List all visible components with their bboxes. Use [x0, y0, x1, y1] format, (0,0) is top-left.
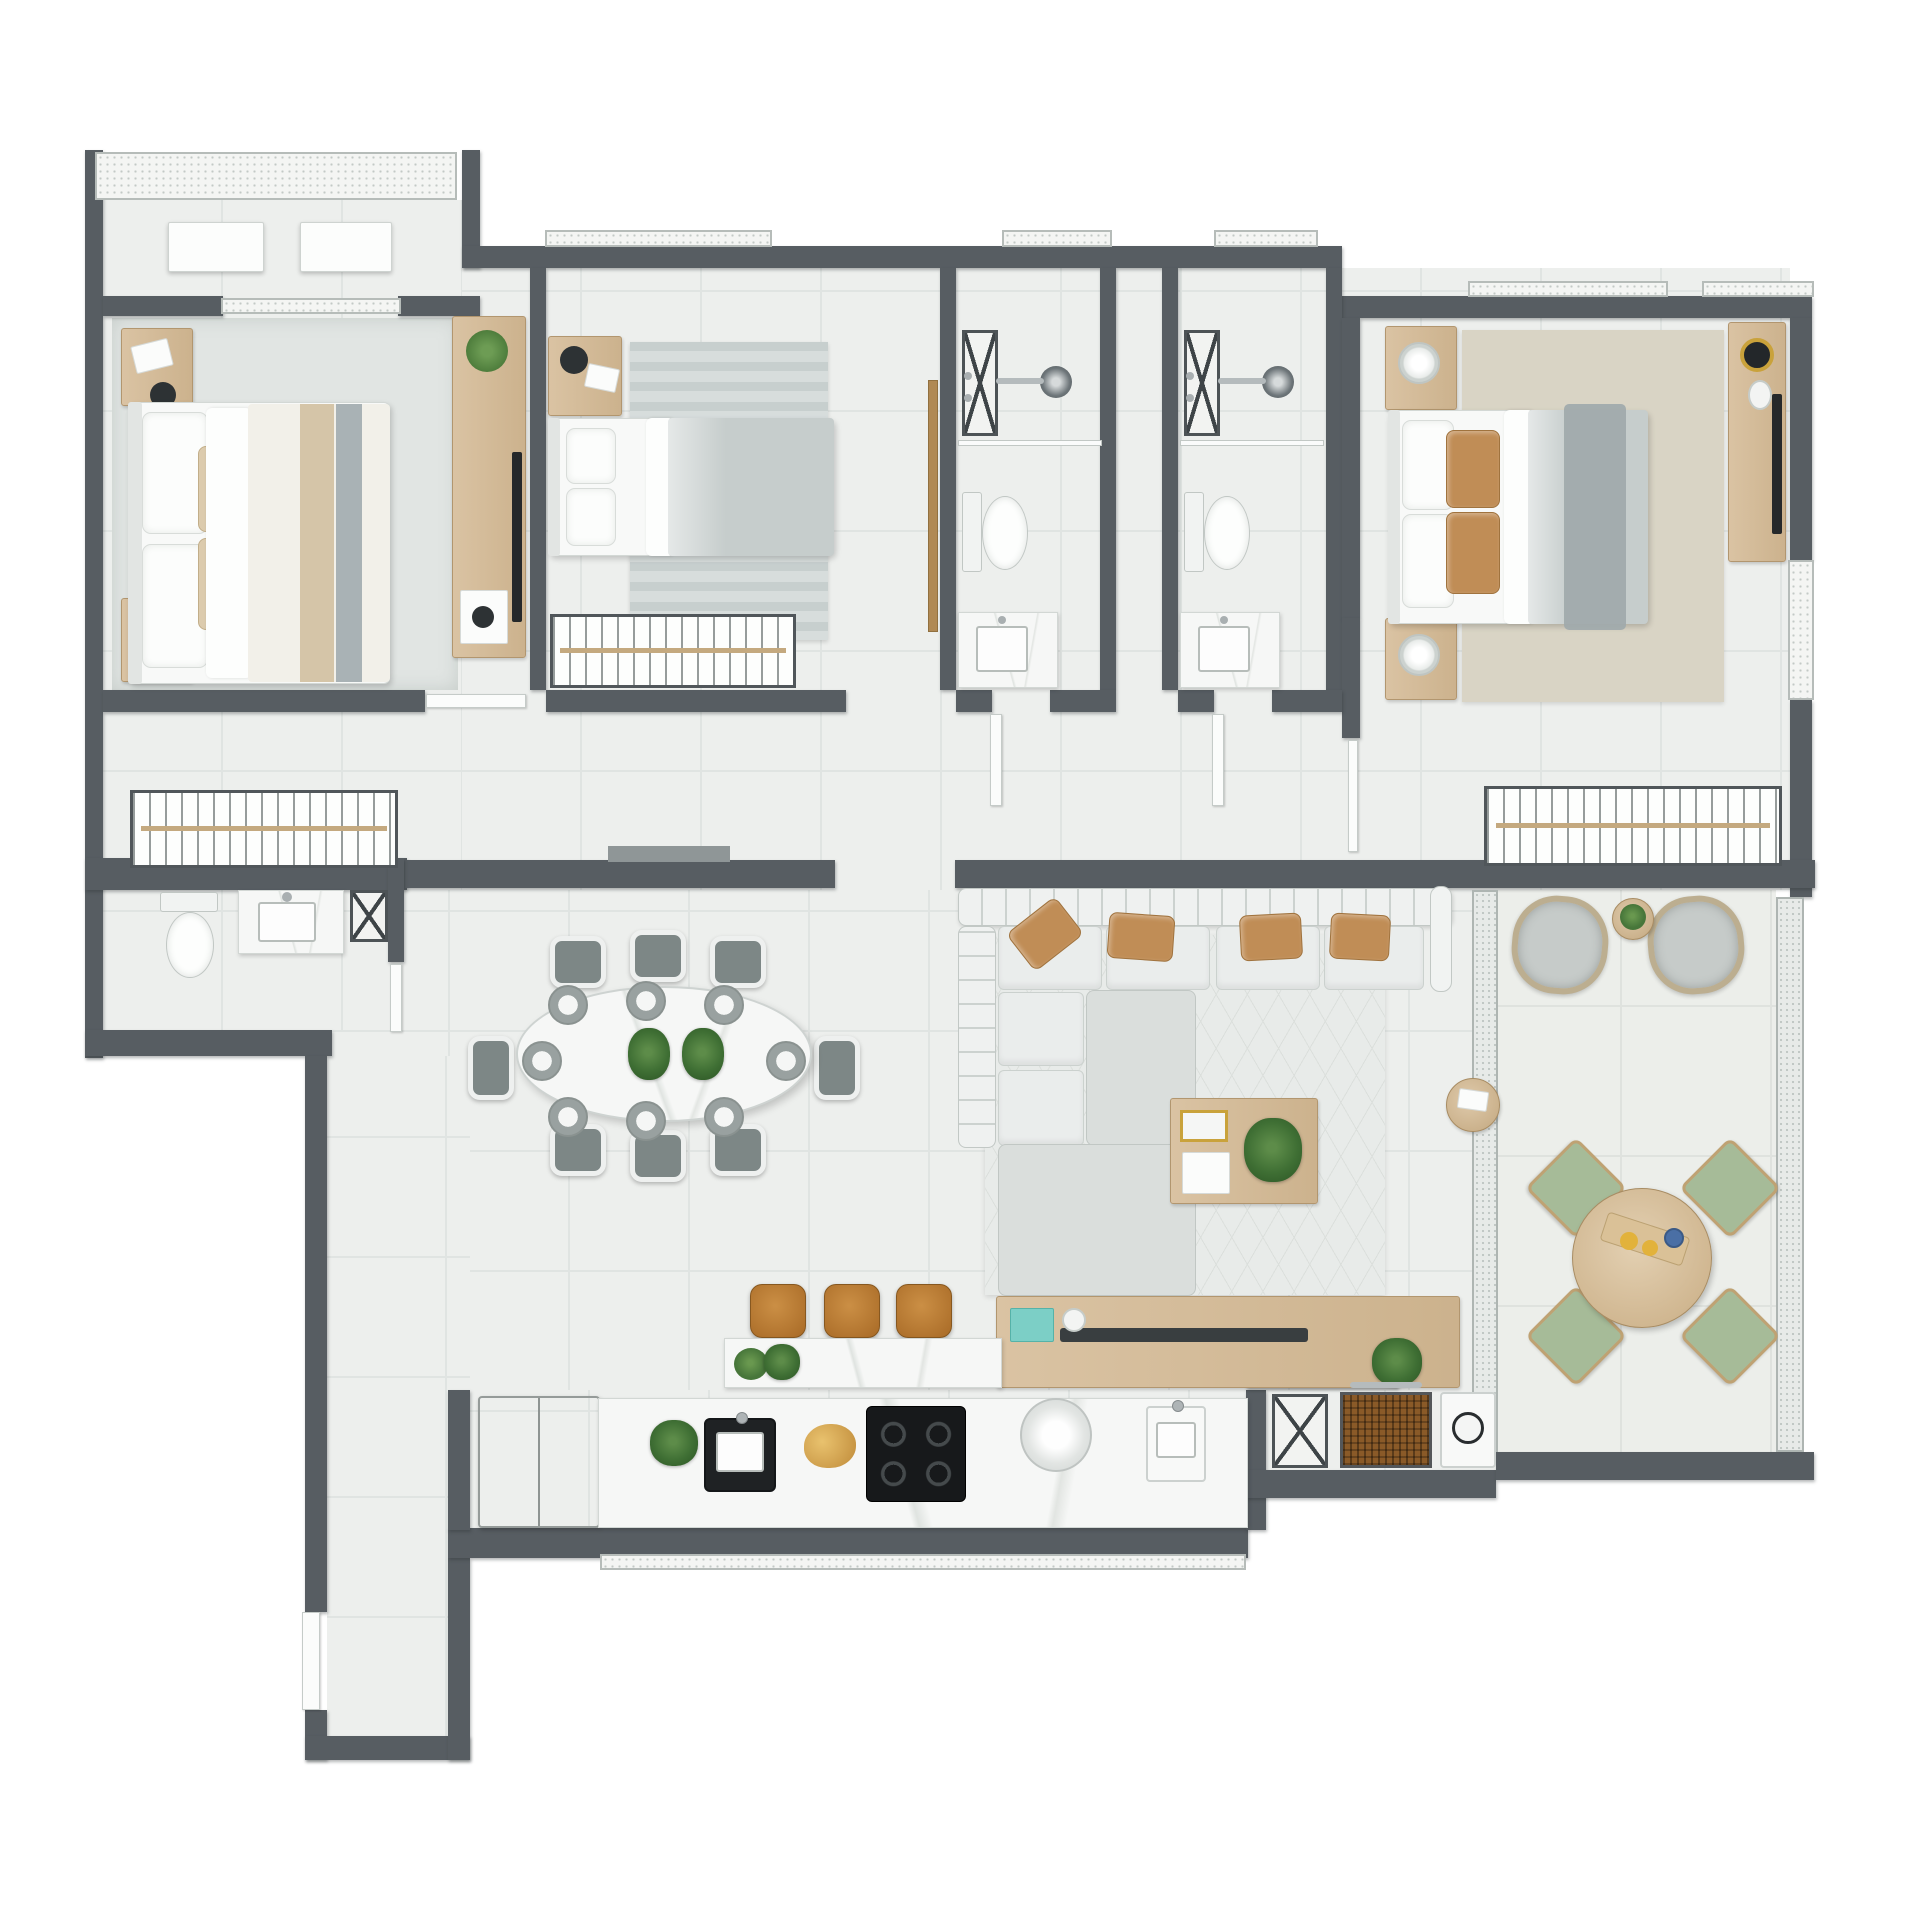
- bedroom1-duvet-beige-band: [300, 404, 334, 682]
- wardrobe-tray-decor: [472, 606, 494, 628]
- wall-bath1-right: [1100, 268, 1116, 690]
- bath2-toilet-tank: [1184, 492, 1204, 572]
- sofa-pillow-tan-1: [1106, 912, 1175, 962]
- bedroom1-door: [426, 694, 526, 708]
- dressing-closet-rail: [130, 790, 398, 868]
- wall-corridor-right: [448, 1558, 470, 1760]
- balcony-bowl: [1664, 1228, 1684, 1248]
- ac-unit-2: [300, 222, 392, 272]
- coffee-table-gold-tray: [1180, 1110, 1228, 1142]
- master-window-right: [1788, 560, 1814, 700]
- wall-left-exterior: [85, 150, 103, 1058]
- wall-bath1-bottom-right: [1050, 690, 1116, 712]
- wall-powder-bottom: [85, 1030, 332, 1056]
- kitchen-appliance-round: [1020, 1398, 1092, 1472]
- wall-bath2-bottom-left: [1178, 690, 1214, 712]
- bath1-shower-control-1: [964, 372, 972, 380]
- bar-stool-1: [750, 1284, 806, 1338]
- wall-nook-bottom: [1246, 1470, 1496, 1498]
- bar-plant-1: [734, 1348, 768, 1380]
- dining-chair-top-2: [630, 930, 686, 982]
- bath2-door: [1212, 714, 1224, 806]
- duct-shaft-powder: [350, 890, 388, 942]
- master-pillow-tan-1: [1446, 430, 1500, 508]
- bath2-shower-glass: [1180, 440, 1324, 446]
- master-pillow-tan-2: [1446, 512, 1500, 594]
- bath1-toilet-tank: [962, 492, 982, 572]
- coffee-table-plant: [1244, 1118, 1302, 1182]
- apartment-floor-plan: [0, 0, 1920, 1920]
- dining-plate-6: [704, 1097, 744, 1137]
- bedroom-tv: [512, 452, 522, 622]
- sofa-seat-left-1: [998, 992, 1084, 1066]
- wall-bath2-bottom-right: [1272, 690, 1342, 712]
- wall-corridor-left-upper: [305, 1056, 327, 1612]
- kitchen-sink2-basin: [1156, 1422, 1196, 1458]
- bedroom1-bed-headboard: [128, 402, 142, 684]
- wall-balcony-bottom: [1496, 1452, 1814, 1480]
- balcony-railing: [1776, 897, 1804, 1452]
- bar-stool-2: [824, 1284, 880, 1338]
- tv-console-teal-box: [1010, 1308, 1054, 1342]
- master-closet-rail: [1484, 786, 1782, 866]
- dining-plate-2: [626, 981, 666, 1021]
- side-table-books: [1457, 1088, 1489, 1112]
- wall-dining-half: [405, 860, 835, 888]
- wall-bath1-bottom-left: [956, 690, 992, 712]
- dining-plate-7: [522, 1041, 562, 1081]
- bedroom2-closet-rail: [550, 614, 796, 688]
- bbq-skewers: [1350, 1382, 1422, 1388]
- powder-door: [390, 964, 402, 1032]
- wall-bedroom1-bottom: [103, 690, 425, 712]
- dining-centerpiece-2: [682, 1028, 724, 1080]
- bedroom2-duvet: [668, 418, 834, 556]
- kitchen-sink-basin: [716, 1432, 764, 1472]
- kitchen-fridge: [478, 1396, 600, 1528]
- bath2-faucet: [1220, 616, 1228, 624]
- kitchen-sink-faucet: [736, 1412, 748, 1424]
- dining-plate-4: [548, 1097, 588, 1137]
- bedroom2-nightstand-decor: [560, 346, 588, 374]
- balcony-round-table: [1572, 1188, 1712, 1328]
- powder-toilet-tank: [160, 892, 218, 912]
- dining-plate-5: [626, 1101, 666, 1141]
- master-window-top: [1468, 281, 1668, 297]
- bbq-grill: [1340, 1392, 1432, 1468]
- powder-sink: [258, 902, 316, 942]
- bath1-shower-glass: [958, 440, 1102, 446]
- half-wall-ledge: [608, 846, 730, 862]
- wall-powder-right: [388, 858, 404, 962]
- bath2-sink: [1198, 626, 1250, 672]
- master-tv: [1772, 394, 1782, 534]
- master-vase: [1748, 380, 1772, 410]
- bedroom2-bed-headboard: [548, 418, 560, 556]
- sofa-seat-left-2: [998, 1070, 1084, 1146]
- master-door: [1348, 740, 1358, 852]
- bedroom2-window: [545, 230, 772, 247]
- wall-bedroom2-bath1: [940, 268, 956, 690]
- powder-toilet-bowl: [166, 912, 214, 978]
- wall-bedroom1-2-divider: [530, 268, 546, 690]
- tv-console-plant: [1372, 1338, 1422, 1386]
- wall-corridor-bottom: [305, 1736, 470, 1760]
- tv-console-soundbar: [1060, 1328, 1308, 1342]
- balcony-side-table-plant: [1620, 904, 1646, 930]
- wall-bedroom2-bottom: [546, 690, 846, 712]
- sofa-pillow-tan-2: [1239, 912, 1303, 961]
- kitchen-plant: [650, 1420, 698, 1466]
- wall-alcove-bottom-right: [398, 296, 480, 316]
- bath2-shower-head: [1262, 366, 1294, 398]
- bath1-sink: [976, 626, 1028, 672]
- wall-bath2-right: [1326, 268, 1342, 690]
- sofa-pillow-tan-3: [1329, 912, 1391, 961]
- bath1-door: [990, 714, 1002, 806]
- master-lamp-bottom: [1398, 634, 1440, 676]
- bath2-shower-control-1: [1186, 372, 1194, 380]
- wall-kitchen-left: [448, 1390, 470, 1530]
- balcony-food-2: [1642, 1240, 1658, 1256]
- balcony-sliding-door: [1472, 890, 1498, 1452]
- sofa-back-left: [958, 926, 996, 1148]
- bedroom2-pillow-2: [566, 488, 616, 546]
- kitchen-window-sill: [600, 1554, 1246, 1570]
- wall-top-main: [462, 246, 1342, 268]
- bath1-window: [1002, 230, 1112, 247]
- dining-centerpiece-1: [628, 1028, 670, 1080]
- wall-right-upper: [1790, 318, 1812, 560]
- kitchen-bread: [804, 1424, 856, 1468]
- duct-shaft-bath1: [962, 330, 998, 436]
- bedroom1-duvet-gray-band: [336, 404, 362, 682]
- balcony-food-1: [1620, 1232, 1638, 1250]
- wall-top-master: [1342, 296, 1812, 318]
- master-window-corner: [1702, 281, 1814, 297]
- dining-plate-1: [548, 985, 588, 1025]
- bath2-toilet-bowl: [1204, 496, 1250, 570]
- tv-console-vase: [1062, 1308, 1086, 1332]
- ac-unit-1: [168, 222, 264, 272]
- bath2-window: [1214, 230, 1318, 247]
- powder-faucet: [282, 892, 292, 902]
- wall-alcove-bottom-left: [103, 296, 223, 316]
- dining-chair-left: [468, 1036, 514, 1100]
- sofa-chaise: [998, 1144, 1196, 1296]
- bedroom2-door-panel: [928, 380, 938, 632]
- bath1-faucet: [998, 616, 1006, 624]
- bar-stool-3: [896, 1284, 952, 1338]
- duct-shaft-nook: [1272, 1394, 1328, 1468]
- wall-master-left-upper: [1342, 318, 1360, 618]
- floor-plan-canvas: [0, 0, 1920, 1920]
- bath2-shower-arm: [1218, 378, 1266, 384]
- bath1-shower-head: [1040, 366, 1072, 398]
- dining-chair-right: [814, 1036, 860, 1100]
- bedroom2-pillow-1: [566, 428, 616, 484]
- dining-plate-8: [766, 1041, 806, 1081]
- master-lamp-top: [1398, 342, 1440, 384]
- kitchen-sink2-faucet: [1172, 1400, 1184, 1412]
- master-throw: [1564, 404, 1626, 630]
- bar-plant-2: [764, 1344, 800, 1380]
- bath1-shower-arm: [996, 378, 1044, 384]
- bath1-toilet-bowl: [982, 496, 1028, 570]
- service-balcony-pass-window: [221, 298, 401, 314]
- kitchen-cooktop: [866, 1406, 966, 1502]
- master-gold-plate: [1740, 338, 1774, 372]
- nook-sink-basin: [1452, 1412, 1484, 1444]
- bath1-shower-control-2: [964, 394, 972, 402]
- bedroom1-sheet: [206, 408, 252, 678]
- wall-bath2-left: [1162, 268, 1178, 690]
- wall-kitchen-right: [1246, 1390, 1266, 1530]
- dining-chair-top-1: [550, 936, 606, 988]
- entry-door: [302, 1612, 320, 1710]
- dining-chair-top-3: [710, 936, 766, 988]
- bath2-shower-control-2: [1186, 394, 1194, 402]
- master-bed-headboard: [1388, 410, 1400, 624]
- service-balcony-window: [95, 152, 457, 200]
- coffee-table-pad: [1182, 1152, 1230, 1194]
- wardrobe-succulent: [466, 330, 508, 372]
- duct-shaft-bath2: [1184, 330, 1220, 436]
- sofa-arm-right: [1430, 886, 1452, 992]
- dining-plate-3: [704, 985, 744, 1025]
- wall-master-left-lower: [1342, 618, 1360, 738]
